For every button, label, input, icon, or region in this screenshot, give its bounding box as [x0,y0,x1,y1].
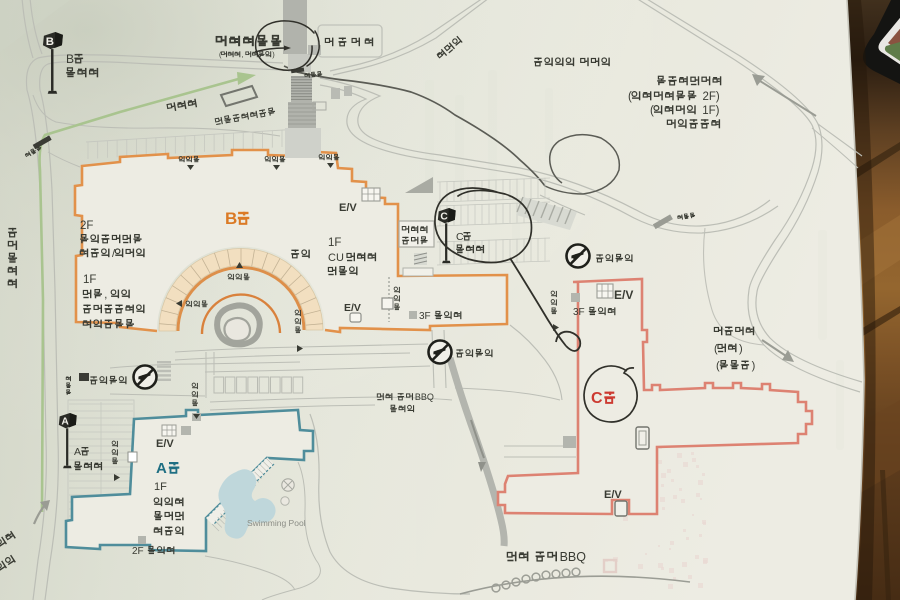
svg-text:1F: 1F [154,481,167,493]
svg-text:(: ( [628,91,632,103]
svg-text:3F: 3F [419,311,431,322]
svg-text:2F: 2F [80,220,93,232]
svg-text:CU: CU [328,252,344,264]
svg-text:A: A [74,446,81,458]
svg-text:1F): 1F) [702,105,719,117]
svg-text:(: ( [714,343,718,355]
svg-text:A: A [61,416,69,427]
svg-text:1F: 1F [328,237,341,249]
svg-text:B: B [46,36,54,48]
svg-text:C: C [456,231,464,243]
svg-text:BBQ: BBQ [415,392,434,402]
svg-text:,: , [241,50,243,59]
svg-text:BBQ: BBQ [560,550,587,564]
svg-text:): ) [752,360,756,372]
svg-text:B: B [225,209,237,228]
svg-text:B: B [66,52,74,66]
svg-text:E/V: E/V [344,302,361,314]
svg-text:E/V: E/V [339,202,357,214]
svg-text:E/V: E/V [614,288,633,302]
svg-text:C: C [591,390,603,407]
svg-text:3F: 3F [573,307,585,318]
svg-text:): ) [739,343,743,355]
svg-text:C: C [440,211,448,222]
svg-text:E/V: E/V [156,438,174,450]
svg-text:(: ( [716,360,720,372]
svg-text:1F: 1F [83,274,96,286]
svg-text:Swimming Pool: Swimming Pool [247,518,306,528]
svg-text:2F: 2F [132,546,144,557]
svg-text:2F): 2F) [703,91,720,103]
svg-text:): ) [272,50,275,59]
svg-text:E/V: E/V [604,489,622,501]
svg-text:A: A [156,460,167,477]
svg-text:,: , [104,289,107,301]
svg-text:(: ( [650,105,654,117]
